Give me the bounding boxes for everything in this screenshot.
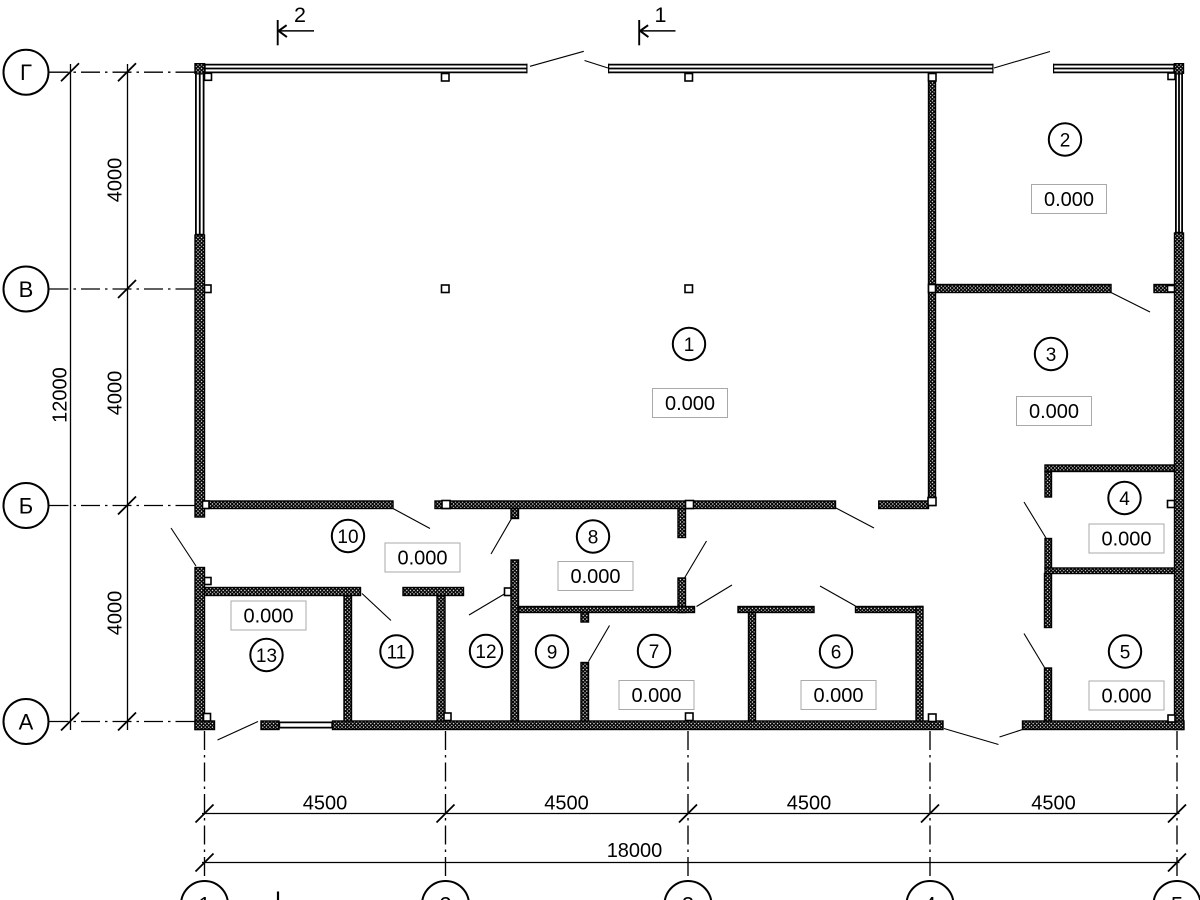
svg-text:4500: 4500 bbox=[303, 793, 348, 815]
svg-text:Б: Б bbox=[19, 493, 33, 518]
svg-text:2: 2 bbox=[294, 3, 306, 27]
svg-text:6: 6 bbox=[831, 642, 842, 663]
svg-text:4500: 4500 bbox=[544, 793, 589, 815]
svg-text:0.000: 0.000 bbox=[665, 393, 715, 415]
svg-text:9: 9 bbox=[547, 642, 558, 663]
svg-text:12: 12 bbox=[475, 642, 496, 663]
svg-text:1: 1 bbox=[655, 3, 667, 27]
svg-text:4500: 4500 bbox=[1031, 793, 1076, 815]
svg-text:0.000: 0.000 bbox=[1101, 529, 1151, 551]
svg-text:1: 1 bbox=[198, 892, 210, 900]
svg-text:0.000: 0.000 bbox=[1101, 686, 1151, 708]
svg-text:0.000: 0.000 bbox=[570, 566, 620, 588]
svg-text:8: 8 bbox=[588, 527, 599, 548]
svg-text:3: 3 bbox=[682, 892, 694, 900]
svg-text:5: 5 bbox=[1120, 642, 1131, 663]
svg-text:11: 11 bbox=[387, 642, 407, 663]
svg-text:0.000: 0.000 bbox=[631, 685, 681, 707]
svg-text:0.000: 0.000 bbox=[1029, 401, 1079, 423]
svg-text:18000: 18000 bbox=[607, 840, 663, 862]
svg-text:4000: 4000 bbox=[105, 158, 127, 203]
svg-text:4: 4 bbox=[1119, 489, 1130, 510]
svg-text:0.000: 0.000 bbox=[1044, 189, 1094, 211]
svg-text:4000: 4000 bbox=[105, 591, 127, 636]
svg-text:Г: Г bbox=[20, 60, 32, 85]
svg-text:А: А bbox=[19, 709, 34, 734]
svg-text:7: 7 bbox=[649, 642, 660, 663]
svg-text:5: 5 bbox=[1171, 892, 1183, 900]
svg-text:В: В bbox=[19, 277, 34, 302]
svg-text:4: 4 bbox=[924, 892, 936, 900]
svg-text:0.000: 0.000 bbox=[397, 548, 447, 570]
svg-text:0.000: 0.000 bbox=[243, 606, 293, 628]
svg-text:13: 13 bbox=[256, 646, 277, 667]
svg-text:4000: 4000 bbox=[105, 371, 127, 416]
svg-text:2: 2 bbox=[1060, 130, 1071, 151]
svg-text:0.000: 0.000 bbox=[813, 685, 863, 707]
svg-text:10: 10 bbox=[337, 527, 358, 548]
svg-text:2: 2 bbox=[439, 892, 451, 900]
svg-text:3: 3 bbox=[1046, 345, 1057, 366]
svg-text:1: 1 bbox=[684, 335, 695, 356]
svg-text:4500: 4500 bbox=[787, 793, 832, 815]
svg-text:12000: 12000 bbox=[50, 367, 72, 423]
